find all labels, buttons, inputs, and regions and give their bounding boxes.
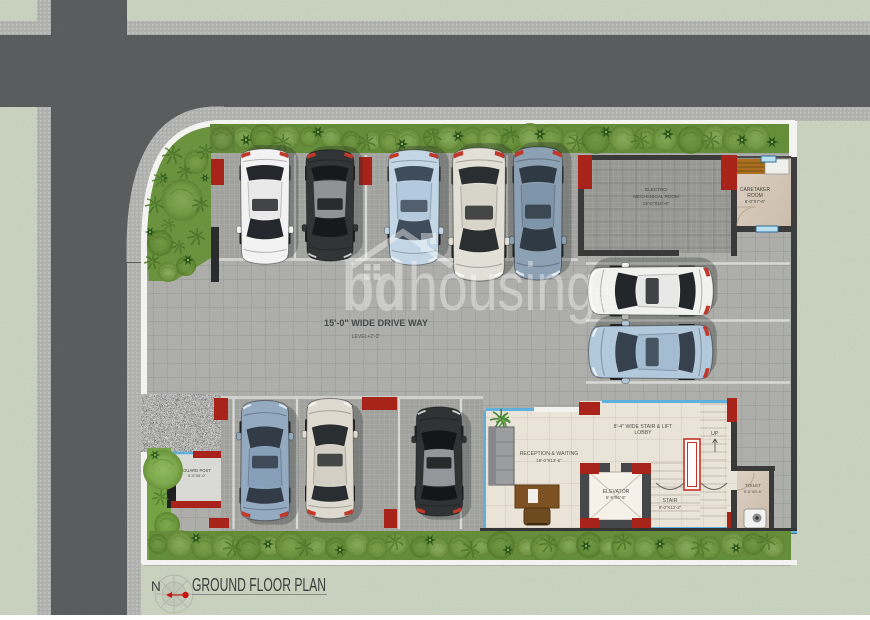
svg-text:MECHANICAL ROOM: MECHANICAL ROOM xyxy=(633,194,679,199)
svg-text:19'-0"X13'-6": 19'-0"X13'-6" xyxy=(536,458,562,463)
svg-text:5'-6"X6'-6": 5'-6"X6'-6" xyxy=(606,495,626,500)
svg-text:housing: housing xyxy=(408,249,596,325)
svg-text:LOBBY: LOBBY xyxy=(634,430,652,436)
svg-text:5'-0"X5'-0": 5'-0"X5'-0" xyxy=(188,474,206,478)
svg-text:19'-0"X10'-6": 19'-0"X10'-6" xyxy=(643,201,670,206)
svg-text:GUARD POST: GUARD POST xyxy=(183,468,211,473)
svg-text:6'-0"X7'-6": 6'-0"X7'-6" xyxy=(745,199,766,204)
svg-text:TOILET: TOILET xyxy=(745,483,761,488)
svg-text:GROUND FLOOR PLAN: GROUND FLOOR PLAN xyxy=(192,575,326,595)
svg-text:LEVEL+2'-0": LEVEL+2'-0" xyxy=(352,334,381,340)
svg-text:ELECTRO: ELECTRO xyxy=(645,187,667,192)
svg-text:bd: bd xyxy=(342,249,406,325)
svg-text:N: N xyxy=(151,579,161,594)
svg-text:9'-0"X13'-2": 9'-0"X13'-2" xyxy=(659,505,682,510)
svg-text:UP: UP xyxy=(711,431,719,437)
svg-text:STAIR: STAIR xyxy=(663,498,678,504)
svg-text:RECEPTION & WAITING: RECEPTION & WAITING xyxy=(520,451,579,457)
svg-text:5'-6"X5'-6": 5'-6"X5'-6" xyxy=(744,489,763,494)
